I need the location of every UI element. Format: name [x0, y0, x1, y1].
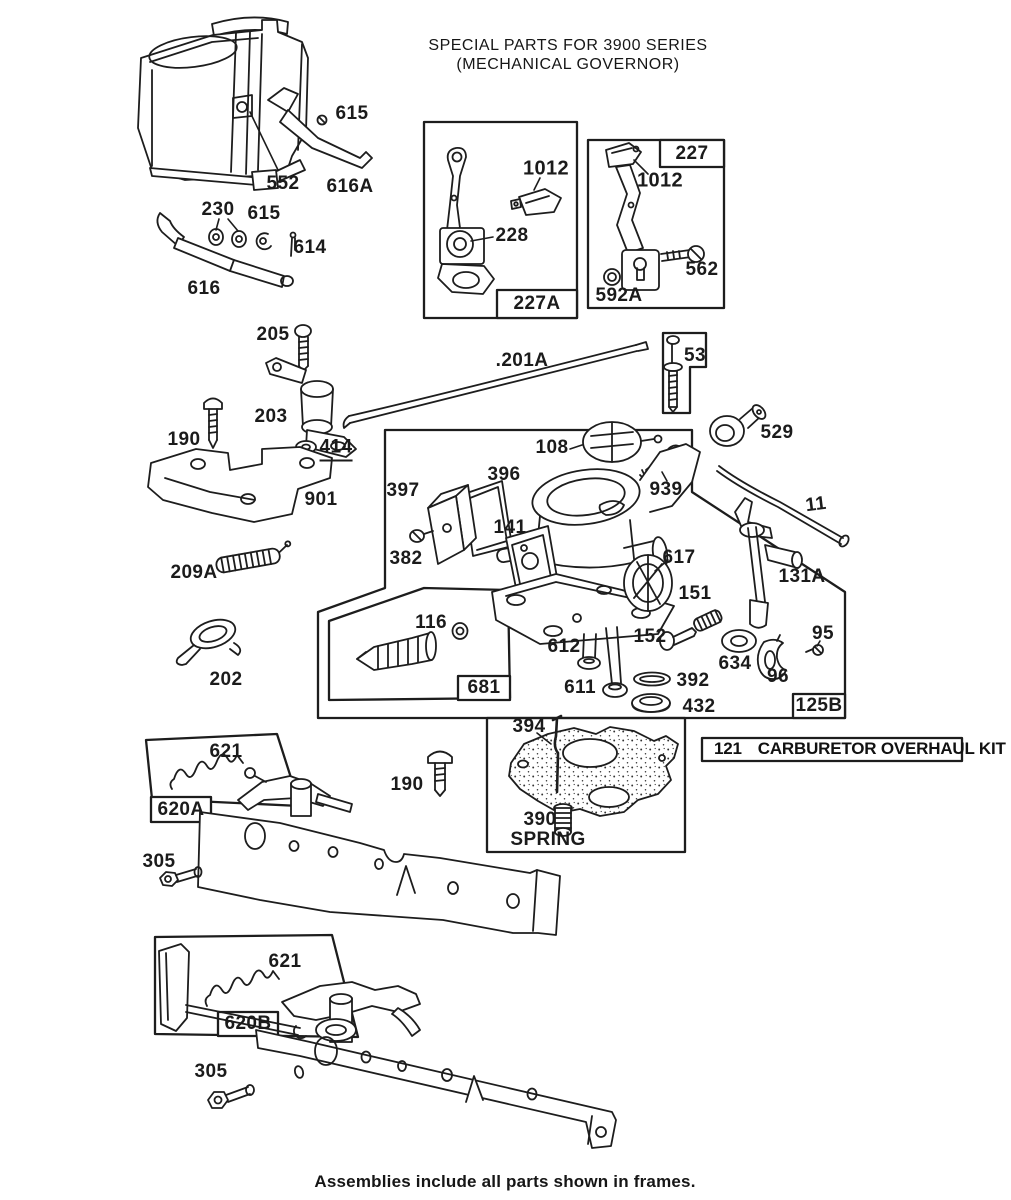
spring-caption: SPRING — [510, 829, 585, 851]
part-label-614: 614 — [294, 237, 327, 259]
part-label-621-top: 621 — [210, 741, 243, 763]
part-label-190-right: 190 — [391, 774, 424, 796]
screw-95-art — [806, 645, 823, 655]
part-label-615-top: 615 — [336, 103, 369, 125]
part-label-96: 96 — [767, 666, 789, 688]
part-label-95: 95 — [812, 623, 834, 645]
part-label-901: 901 — [305, 489, 338, 511]
screw-190-right-art — [428, 752, 452, 797]
part-label-382: 382 — [390, 548, 423, 570]
control-bracket-620a-art — [170, 754, 560, 935]
part-label-230: 230 — [202, 199, 235, 221]
screw-190-left-art — [204, 399, 222, 449]
part-label-617: 617 — [663, 547, 696, 569]
part-label-397: 397 — [387, 480, 420, 502]
part-label-108: 108 — [536, 437, 569, 459]
part-label-390: 390 — [524, 809, 557, 831]
overhaul-kit-name: CARBURETOR OVERHAUL KIT — [758, 739, 1006, 758]
choke-disc-108-art — [583, 422, 662, 462]
page-title-line1: SPECIAL PARTS FOR 3900 SERIES — [428, 37, 707, 55]
part-label-305-top: 305 — [143, 851, 176, 873]
part-label-151: 151 — [679, 583, 712, 605]
frame-tag-681: 681 — [468, 677, 501, 699]
bolt-205-art — [295, 325, 311, 371]
spring-209a-art — [214, 541, 293, 573]
part-label-621-bottom: 621 — [269, 951, 302, 973]
part-label-634: 634 — [719, 653, 752, 675]
part-label-414: 414 — [320, 437, 353, 462]
screw-305-bottom-art — [208, 1085, 254, 1108]
part-label-394: 394 — [513, 716, 546, 738]
part-label-11: 11 — [804, 493, 827, 517]
washer-634-art — [722, 630, 756, 652]
part-label-202: 202 — [210, 669, 243, 691]
frame-tag-620b: 620B — [224, 1013, 271, 1035]
part-label-152: 152 — [634, 626, 667, 648]
grommet-529-art — [710, 403, 768, 446]
frame-tag-227: 227 — [676, 143, 709, 165]
part-label-209a: 209A — [170, 562, 217, 584]
part-label-552: 552 — [267, 173, 300, 195]
part-label-201a: .201A — [496, 350, 549, 372]
spring-151-art — [692, 609, 723, 633]
footer-note: Assemblies include all parts shown in fr… — [314, 1172, 695, 1192]
frame-tag-53: 53 — [684, 345, 706, 367]
part-label-396: 396 — [488, 464, 521, 486]
parts-diagram-page: SPECIAL PARTS FOR 3900 SERIES (MECHANICA… — [0, 0, 1011, 1200]
part-label-1012-a: 1012 — [523, 158, 569, 181]
frame-tag-620a: 620A — [157, 799, 204, 821]
frame-tag-125b: 125B — [795, 695, 842, 717]
part-label-616a: 616A — [326, 176, 373, 198]
part-label-190-left: 190 — [168, 429, 201, 451]
overhaul-kit-number: 121 — [714, 739, 742, 758]
part-label-203: 203 — [255, 406, 288, 428]
rod-11-art — [717, 466, 851, 548]
part-label-611: 611 — [564, 677, 596, 699]
part-label-131a: 131A — [778, 566, 825, 588]
screw-53-art — [664, 336, 682, 412]
part-label-616: 616 — [188, 278, 221, 300]
part-label-392: 392 — [677, 670, 710, 692]
diagram-line-art — [0, 0, 1011, 1200]
throttle-shaft-131a-art — [735, 498, 802, 628]
oring-392-seal-432-art — [632, 673, 670, 713]
page-title-line2: (MECHANICAL GOVERNOR) — [456, 56, 679, 74]
part-label-432: 432 — [683, 696, 716, 718]
part-label-116: 116 — [415, 612, 447, 634]
control-bracket-620b-art — [159, 944, 616, 1148]
part-label-592a: 592A — [595, 285, 642, 307]
part-label-205: 205 — [257, 324, 290, 346]
part-label-939: 939 — [650, 479, 683, 501]
part-label-305-bottom: 305 — [195, 1061, 228, 1083]
part-label-228: 228 — [496, 225, 529, 247]
part-label-529: 529 — [761, 422, 794, 444]
clip-202-art — [177, 615, 241, 665]
needle-116-art — [357, 623, 468, 670]
part-label-612: 612 — [548, 636, 581, 658]
part-label-562: 562 — [686, 259, 719, 281]
part-label-1012-b: 1012 — [637, 170, 683, 193]
part-label-141: 141 — [494, 517, 527, 539]
overhaul-kit-label: 121CARBURETOR OVERHAUL KIT — [714, 739, 1006, 759]
part-label-615-mid: 615 — [248, 203, 281, 225]
frame-tag-227a: 227A — [513, 293, 560, 315]
